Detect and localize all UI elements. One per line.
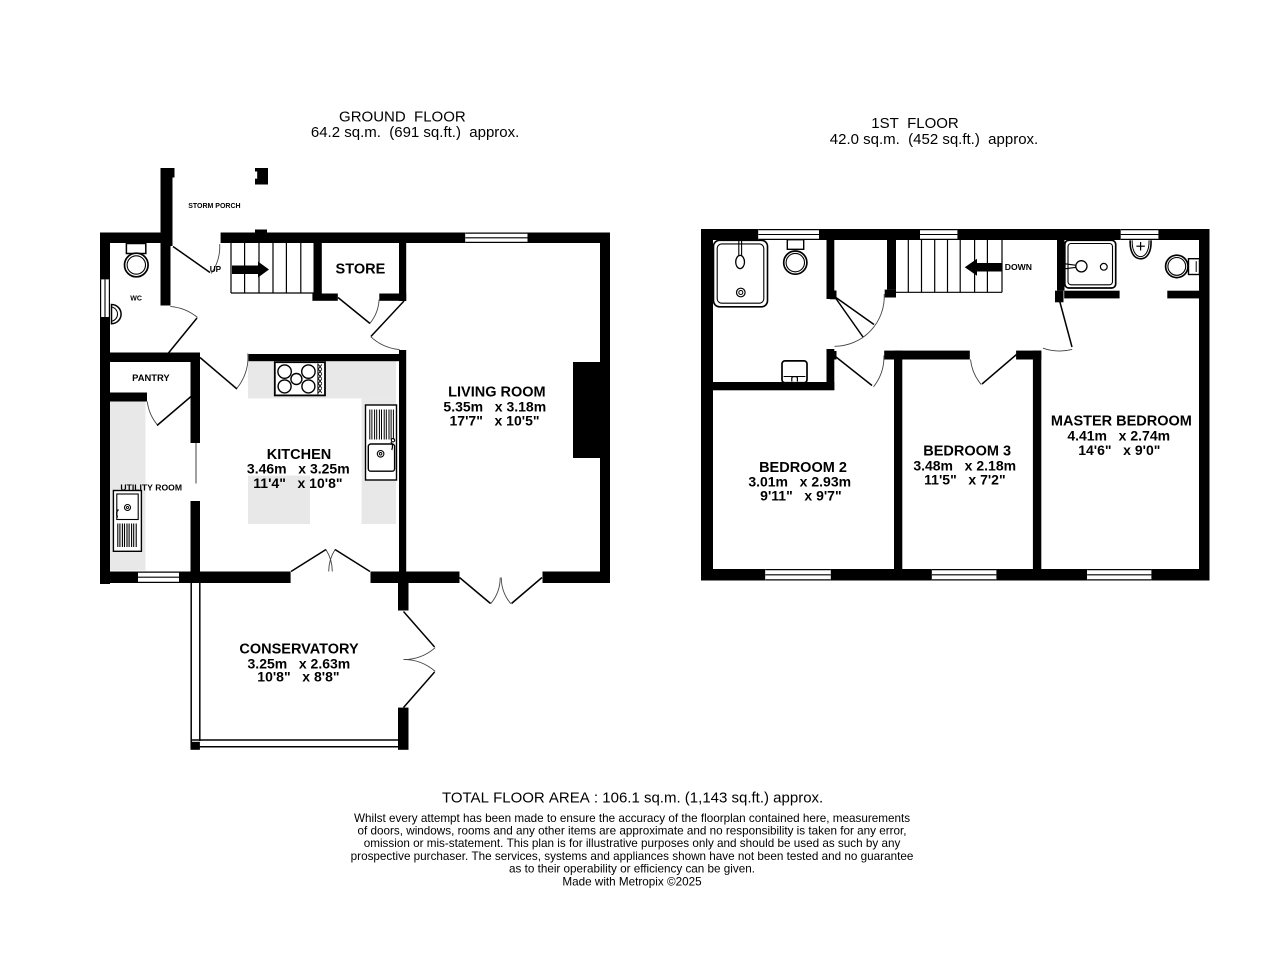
svg-text:UP: UP [210, 265, 222, 274]
svg-text:11'5" x 7'2": 11'5" x 7'2" [924, 472, 1005, 488]
svg-text:1ST FLOOR: 1ST FLOOR [871, 115, 959, 132]
svg-text:STORM PORCH: STORM PORCH [188, 203, 240, 210]
svg-text:as to their operability or eff: as to their operability or efficiency ca… [509, 863, 755, 876]
svg-text:10'8" x 8'8": 10'8" x 8'8" [257, 668, 339, 684]
svg-text:omission or mis-statement. Thi: omission or mis-statement. This plan is … [364, 837, 901, 850]
svg-text:Made with Metropix ©2025: Made with Metropix ©2025 [562, 875, 702, 888]
svg-text:prospective purchaser. The ser: prospective purchaser. The services, sys… [351, 850, 914, 863]
svg-text:Whilst every attempt has been: Whilst every attempt has been made to en… [354, 812, 910, 825]
svg-text:UTILITY ROOM: UTILITY ROOM [120, 483, 182, 493]
svg-text:STORE: STORE [336, 262, 386, 278]
svg-text:DOWN: DOWN [1005, 262, 1032, 272]
svg-text:11'4" x 10'8": 11'4" x 10'8" [253, 475, 342, 491]
svg-text:42.0 sq.m. (452 sq.ft.) appr: 42.0 sq.m. (452 sq.ft.) approx. [830, 131, 1038, 148]
svg-text:of doors, windows, rooms and a: of doors, windows, rooms and any other i… [358, 825, 907, 838]
svg-text:TOTAL FLOOR AREA : 106.1 sq.m.: TOTAL FLOOR AREA : 106.1 sq.m. (1,143 sq… [442, 790, 823, 807]
svg-text:9'11" x 9'7": 9'11" x 9'7" [760, 488, 841, 504]
svg-text:14'6" x 9'0": 14'6" x 9'0" [1078, 442, 1160, 458]
svg-text:PANTRY: PANTRY [132, 372, 170, 383]
svg-text:17'7" x 10'5": 17'7" x 10'5" [450, 413, 540, 429]
svg-text:WC: WC [130, 296, 142, 303]
svg-text:64.2 sq.m. (691 sq.ft.) appr: 64.2 sq.m. (691 sq.ft.) approx. [311, 124, 519, 141]
